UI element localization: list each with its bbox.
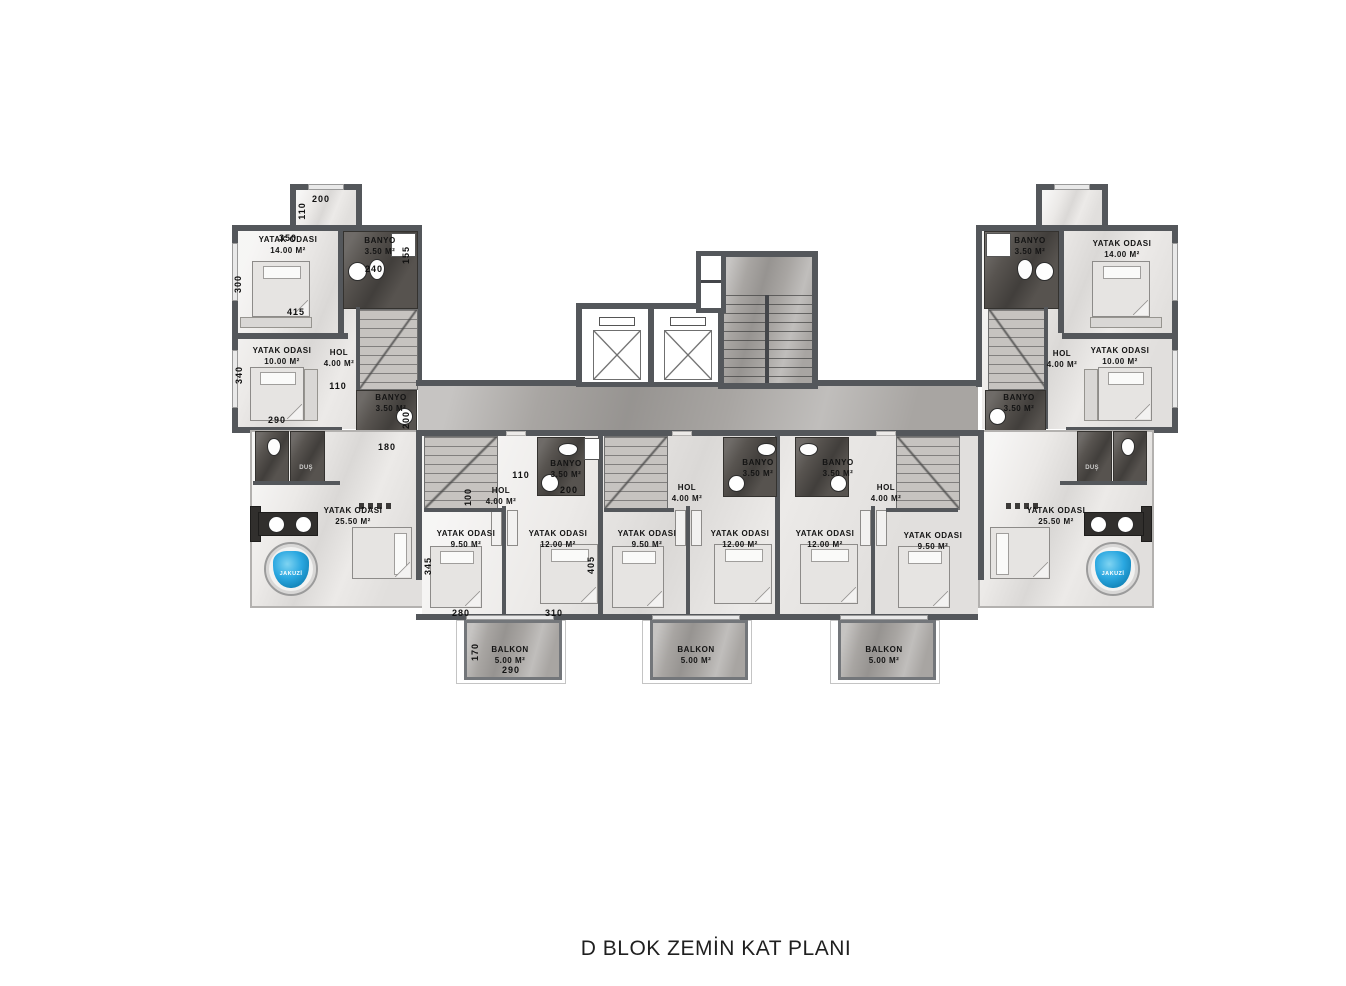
shaft-divider [701,280,721,283]
pillow [1103,266,1141,279]
stairs-unit-3 [896,436,960,510]
jacuzzi-water [273,551,309,588]
room-label-banyo-upper-left: BANYO3.50 M² [364,236,395,258]
room-label-banyo-unit2: BANYO3.50 M² [742,458,773,480]
dim-banyo-lower-width: 180 [378,442,396,452]
wall [976,225,982,387]
pillow [811,549,849,562]
dim-balkon-width: 290 [502,665,520,675]
dim-unit-hol-opening: 110 [512,470,530,480]
room-label-banyo-unit1: BANYO3.50 M² [550,459,581,481]
window [1172,243,1178,301]
dresser [304,369,318,421]
room-label-banyo-lower-right: BANYO3.50 M² [1003,393,1034,415]
partition-wall [871,506,875,614]
bed [1098,367,1152,421]
pillow [260,372,296,385]
dim-bedroom14-width: 350 [279,233,297,243]
stair-cut-line [989,310,1046,389]
shower-room-right [1077,431,1112,484]
pillow [1108,372,1144,385]
partition-wall [604,508,674,512]
room-label-bedroom25-left: YATAK ODASI25.50 M² [324,506,383,528]
bath-shelf [584,438,600,460]
bed [800,544,858,604]
partition-wall [502,506,506,614]
pillow [551,549,589,562]
window [1054,184,1090,190]
sink-icon [268,516,285,533]
bed [352,527,412,579]
room-label-bedroom10-left: YATAK ODASI10.00 M² [253,346,312,368]
elevator-car-icon [593,330,641,380]
dim-bedroom10-width: 290 [268,415,286,425]
dim-bedroom12-depth: 405 [586,556,596,574]
elevator-door [670,317,706,326]
bed [612,546,664,608]
bed [990,527,1050,579]
room-label-banyo-upper-right: BANYO3.50 M² [1014,236,1045,258]
pillow [263,266,301,279]
stair-cut-line [897,437,959,509]
bed [250,367,304,421]
wardrobe [691,510,702,546]
room-label-bedroom12-unit1: YATAK ODASI12.00 M² [529,529,588,551]
wall [356,184,362,231]
dim-bedroom9-width: 280 [452,608,470,618]
sink-icon [1117,516,1134,533]
dim-bedroom14-depth: 300 [233,275,243,293]
shower-room-left [290,431,325,484]
stair-cut-line [360,310,417,389]
jacuzzi-label: JAKUZİ [1088,571,1138,577]
partition-wall [232,333,348,339]
pillow [440,551,474,564]
window [308,184,344,190]
stairs-unit-2 [604,436,668,510]
wardrobe [675,510,686,546]
room-label-banyo-unit3: BANYO3.50 M² [822,458,853,480]
bed [898,546,950,608]
partition-wall [1060,481,1147,485]
window [1172,350,1178,408]
bed [714,544,772,604]
stairs-right-wing [988,309,1047,390]
elevator-car-icon [664,330,712,380]
unit-divider-wall [598,436,603,614]
dim-banyo-upper-depth: 155 [401,246,411,264]
dim-hol-opening-left: 110 [329,381,347,391]
room-label-balkon-3: BALKON5.00 M² [865,645,902,667]
wall [290,184,296,231]
room-label-hol-right: HOL4.00 M² [1047,349,1078,371]
room-label-bedroom25-right: YATAK ODASI25.50 M² [1027,506,1086,528]
jacuzzi-label: JAKUZİ [266,571,316,577]
bath-shelf [986,233,1011,257]
dim-bedroom10-depth: 340 [234,366,244,384]
wall [1036,184,1042,231]
dim-unit-stair-depth: 100 [463,488,473,506]
room-label-balkon-1: BALKON5.00 M² [491,645,528,667]
jacuzzi-right: JAKUZİ [1086,542,1140,596]
sink-icon [1090,516,1107,533]
bed [430,546,482,608]
room-label-bedroom12-unit2: YATAK ODASI12.00 M² [711,529,770,551]
dim-banyo-upper-width: 240 [365,264,383,274]
dim-unit-banyo-width: 200 [560,485,578,495]
room-label-bedroom14-right: YATAK ODASI14.00 M² [1093,239,1152,261]
room-label-hol-unit1: HOL4.00 M² [486,486,517,508]
wall [1102,184,1108,231]
stair-cut-line [605,437,667,509]
room-label-bedroom9-unit2: YATAK ODASI9.50 M² [618,529,677,551]
dresser [1084,369,1098,421]
dim-entry-depth: 110 [297,202,307,220]
room-label-hol-left: HOL4.00 M² [324,348,355,370]
room-label-bedroom10-right: YATAK ODASI10.00 M² [1091,346,1150,368]
dim-bedroom12-width: 310 [545,608,563,618]
room-label-bedroom9-unit3: YATAK ODASI9.50 M² [904,531,963,553]
floor-plan-page: JAKUZİ [0,0,1346,986]
pillow [622,551,656,564]
dim-entry-width: 200 [312,194,330,204]
pillow [908,551,942,564]
stairs-left-wing [359,309,418,390]
partition-wall [886,508,958,512]
jacuzzi-water [1095,551,1131,588]
dresser [1090,317,1162,328]
room-label-balkon-2: BALKON5.00 M² [677,645,714,667]
wall [978,430,984,580]
sink-icon [295,516,312,533]
pillow [394,533,407,575]
dim-bedroom14-clear: 415 [287,307,305,317]
jacuzzi-left: JAKUZİ [264,542,318,596]
plan-title: D BLOK ZEMİN KAT PLANI [581,937,851,961]
room-label-dus-left: DUŞ [299,464,313,472]
wardrobe [507,510,518,546]
room-label-bedroom9-unit1: YATAK ODASI9.50 M² [437,529,496,551]
room-label-hol-unit2: HOL4.00 M² [672,483,703,505]
wardrobe [876,510,887,546]
partition-wall [1062,333,1178,339]
bed [1092,261,1150,317]
dim-banyo-lower-depth: 200 [401,411,411,429]
corridor-floor [418,386,978,430]
partition-wall [253,481,340,485]
pillow [996,533,1009,575]
partition-wall [424,508,504,512]
partition-wall [686,506,690,614]
dresser [240,317,312,328]
pillow [725,549,763,562]
sink-icon [1035,262,1054,281]
room-label-dus-right: DUŞ [1085,464,1099,472]
room-label-bedroom12-unit3: YATAK ODASI12.00 M² [796,529,855,551]
elevator-door [599,317,635,326]
stair-rail [765,295,769,383]
room-label-hol-unit3: HOL4.00 M² [871,483,902,505]
dim-bedroom9-depth: 345 [423,557,433,575]
dim-balkon-depth: 170 [470,643,480,661]
wardrobe [860,510,871,546]
